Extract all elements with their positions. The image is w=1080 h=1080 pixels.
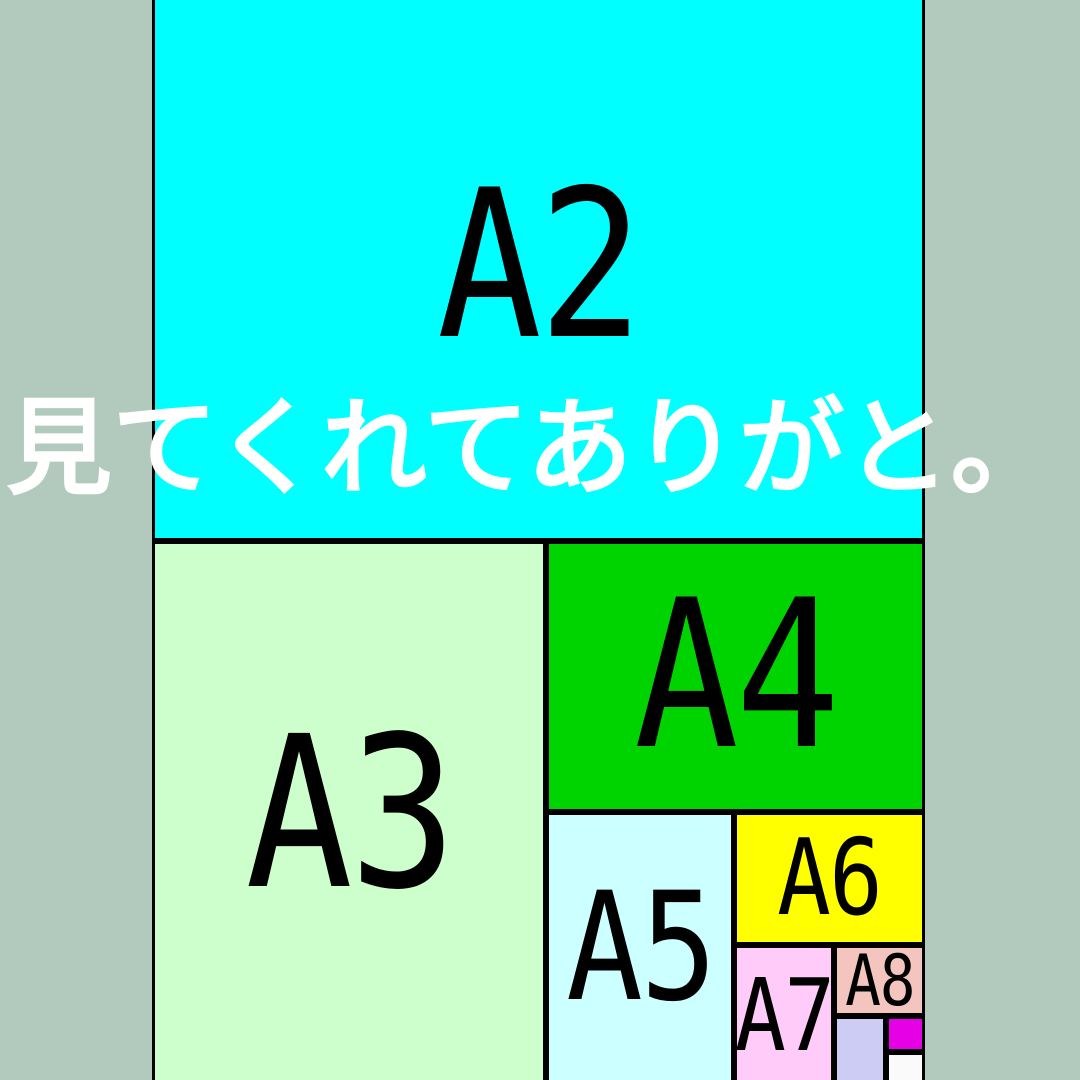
paper-sheet-label: A4	[634, 574, 837, 779]
paper-sheet-label: A2	[437, 164, 640, 369]
paper-sheet-unlabeled-8	[886, 1016, 925, 1052]
paper-sheet-A4: A4	[546, 541, 925, 812]
paper-sheet-label: A3	[245, 709, 453, 919]
paper-sheet-unlabeled-9	[886, 1052, 925, 1080]
paper-sheet-A6: A6	[734, 812, 925, 945]
paper-sheet-label: A8	[845, 946, 914, 1016]
canvas: A2A3A4A5A6A7A8 見てくれてありがと。	[0, 0, 1080, 1080]
paper-sheet-A5: A5	[546, 812, 734, 1080]
paper-sheet-A7: A7	[734, 945, 834, 1080]
caption-text: 見てくれてありがと。	[0, 392, 1080, 506]
paper-sheet-label: A7	[735, 966, 834, 1066]
paper-sheet-unlabeled-7	[834, 1016, 886, 1080]
paper-sheet-label: A5	[566, 873, 714, 1023]
paper-sheet-A8: A8	[834, 945, 925, 1016]
paper-sheet-label: A6	[778, 826, 882, 931]
paper-sheet-A3: A3	[152, 541, 546, 1080]
